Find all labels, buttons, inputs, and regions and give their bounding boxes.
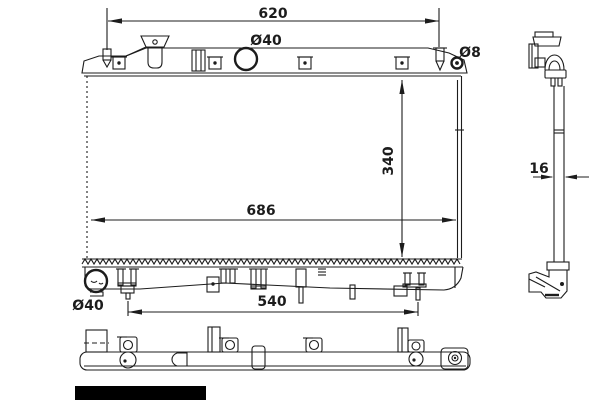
side-core-strip [554,86,564,262]
bottom-bracket-3 [249,269,268,289]
bottom-bracket-2 [207,269,238,292]
tank-clip-2 [207,57,223,69]
bottom-left-pipe [84,330,109,352]
dimension-340: 340 [381,80,405,257]
tank-clip-4 [394,57,410,69]
dim-16-label: 16 [529,161,548,177]
bottom-clip-d [408,340,424,352]
side-top-fitting [529,32,566,86]
dim-540-label: 540 [257,294,286,310]
bottom-clip-c [303,338,322,352]
dim-620-label: 620 [258,6,287,22]
radiator-cap [126,36,169,68]
radiator-technical-drawing: 620 Ø40 Ø8 340 686 Ø40 540 [0,0,600,400]
core [82,76,464,264]
bottom-pin-mid [350,285,355,299]
dim-filler-label: Ø40 [250,33,282,49]
mounting-pin-left [103,49,111,67]
dimension-540: 540 [128,294,418,316]
dim-686-label: 686 [246,203,275,219]
bottom-bracket-5 [394,273,426,300]
dimension-16: 16 [529,161,589,179]
dim-340-label: 340 [381,146,397,175]
bottom-rib-clip [318,269,326,275]
bottom-bar [80,352,470,370]
bottom-view [80,327,470,370]
top-tank-outline [82,48,467,73]
dimension-686: 686 [91,203,456,223]
bottom-tall-tab-left [208,327,220,352]
filler-neck-circle [235,48,257,70]
dim-pin-label: Ø8 [459,45,481,61]
tank-fitting-block [192,50,205,71]
bottom-clip-b [219,338,238,352]
core-zigzag [82,259,460,264]
side-view: 16 [529,32,589,298]
outlet-circle [85,270,107,296]
bottom-bracket-1 [116,269,139,299]
side-bottom-bracket [529,262,569,298]
bottom-d-tab [172,353,187,366]
bottom-boss-2 [409,352,423,366]
tank-clip-3 [297,57,313,69]
censor-bar [75,386,206,400]
tank-clip-1 [111,57,127,69]
dim-outlet-label: Ø40 [72,298,104,314]
bottom-tall-tab-right [398,328,408,352]
front-view: 620 Ø40 Ø8 340 686 Ø40 540 [72,6,481,316]
bottom-clip-a [117,337,137,352]
